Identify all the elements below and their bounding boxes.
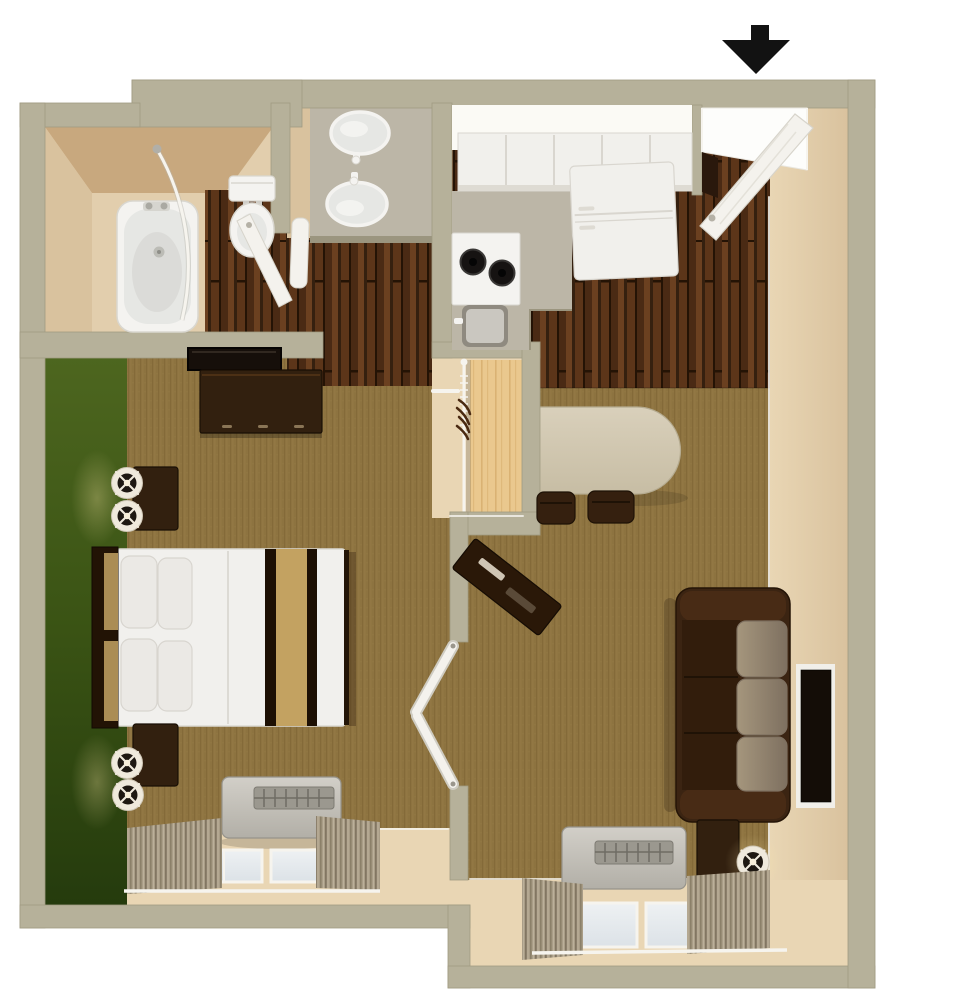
vanity-counter-edge xyxy=(310,236,432,243)
hallway-wood-floor xyxy=(287,233,452,386)
dining-chair-left xyxy=(537,492,575,524)
door-hinge-lower xyxy=(451,782,456,787)
window-pane-right xyxy=(271,850,321,882)
floor-plan-canvas xyxy=(0,0,967,1000)
curtain-left xyxy=(127,818,222,894)
lamp-glow-lower xyxy=(71,734,123,830)
wall-bottom-living xyxy=(448,966,875,988)
sink-highlight xyxy=(340,121,368,137)
bed-foot-fold xyxy=(317,550,344,725)
entry-door-knob xyxy=(709,215,716,222)
wall-divider-lower xyxy=(450,786,468,880)
bed-shadow xyxy=(349,552,356,726)
toilet-tank xyxy=(229,176,275,201)
sofa-arm-bottom xyxy=(680,789,786,819)
headboard-panel-top xyxy=(104,553,118,630)
shower-head xyxy=(153,145,162,154)
wall-kitchen-left xyxy=(432,103,452,358)
sofa-shadow xyxy=(664,598,676,812)
kitchen-faucet xyxy=(454,318,463,324)
sink-highlight xyxy=(336,200,364,216)
closet-rod-cap xyxy=(461,359,468,366)
lamp-4 xyxy=(113,780,144,811)
runner-border-right xyxy=(307,549,317,726)
lamp-1 xyxy=(112,468,143,499)
dresser xyxy=(200,370,322,433)
wall-bathroom-right xyxy=(271,103,290,233)
bed-runner xyxy=(276,549,307,726)
wall-left xyxy=(20,103,45,928)
burner-center-left xyxy=(469,258,477,266)
sofa-arm-top xyxy=(680,591,786,621)
fridge-handle-bottom xyxy=(579,225,595,230)
hanging-towel xyxy=(290,218,309,289)
window-pane-left xyxy=(577,903,637,947)
curtain-right xyxy=(316,816,380,890)
lamp-3 xyxy=(112,748,143,779)
bed xyxy=(92,547,356,728)
dining-table xyxy=(536,407,681,494)
sofa-back-cushions xyxy=(737,621,787,791)
bathroom-door-knob xyxy=(246,222,252,228)
kitchen-sink-basin xyxy=(466,309,504,343)
sofa xyxy=(664,588,790,822)
door-hinge-upper xyxy=(451,644,456,649)
right-wall-face xyxy=(770,105,848,965)
dresser-shadow xyxy=(200,433,322,438)
curtain-right xyxy=(687,870,770,954)
sofa-seat xyxy=(682,620,740,790)
wall-right xyxy=(848,80,875,988)
lamp-2 xyxy=(112,501,143,532)
headboard-panel-bottom xyxy=(104,641,118,721)
runner-border-left xyxy=(265,549,276,726)
dining-chair-right xyxy=(588,491,634,523)
wall-tv-screen xyxy=(801,670,831,802)
lamp-glow-upper xyxy=(71,450,123,546)
curtain-left xyxy=(522,878,583,960)
floor-plan-svg xyxy=(0,0,967,1000)
wall-bottom-bedroom xyxy=(20,905,470,928)
wall-entry-pillar xyxy=(692,105,702,195)
fridge-handle-top xyxy=(578,206,594,211)
entry-threshold xyxy=(702,152,718,198)
bed-foot-frame xyxy=(344,550,349,725)
refrigerator xyxy=(570,162,679,280)
burner-center-right xyxy=(498,269,506,277)
closet-shelf xyxy=(470,360,523,518)
